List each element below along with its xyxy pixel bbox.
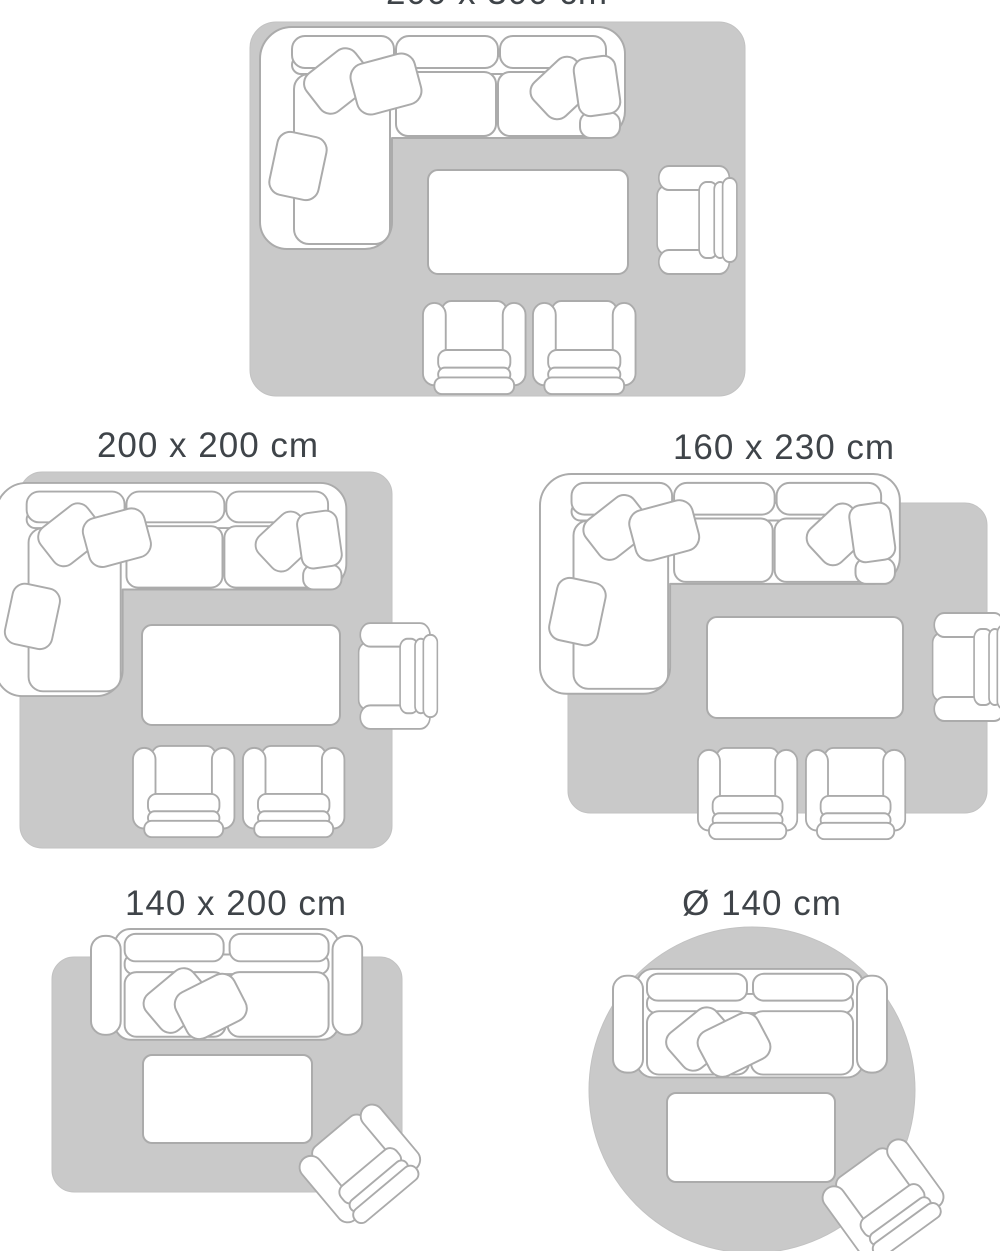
armchair-bottom-left: [423, 301, 526, 394]
armchair-bottom-left: [133, 746, 235, 837]
panel-title-200x300: 200 x 300 cm: [386, 0, 608, 10]
coffee-table: [143, 1055, 312, 1143]
two-seat-sofa: [613, 969, 887, 1081]
coffee-table: [142, 625, 340, 725]
panel-title-200x200: 200 x 200 cm: [97, 428, 319, 463]
armchair-right: [933, 613, 1000, 721]
panel-title-160x230: 160 x 230 cm: [673, 430, 895, 465]
diagram-200x300: [250, 22, 745, 396]
rug-size-guide: 200 x 300 cm 200 x 200 cm 160 x 230 cm 1…: [0, 0, 1000, 1251]
coffee-table: [428, 170, 628, 274]
diagram-140x200: [52, 929, 430, 1234]
coffee-table: [667, 1093, 835, 1182]
diagram-d140: [589, 927, 953, 1251]
armchair-bottom-right: [533, 301, 636, 394]
armchair-bottom-left: [698, 748, 797, 839]
size-guide-illustration: [0, 0, 1000, 1251]
diagram-160x230: [540, 474, 1000, 839]
armchair-bottom-right: [806, 748, 905, 839]
two-seat-sofa: [91, 929, 362, 1044]
panel-title-d140: Ø 140 cm: [682, 886, 842, 921]
armchair-right: [657, 166, 737, 274]
armchair-right: [359, 623, 438, 729]
diagram-200x200: [0, 472, 437, 848]
panel-title-140x200: 140 x 200 cm: [125, 886, 347, 921]
coffee-table: [707, 617, 903, 718]
armchair-bottom-right: [243, 746, 345, 837]
